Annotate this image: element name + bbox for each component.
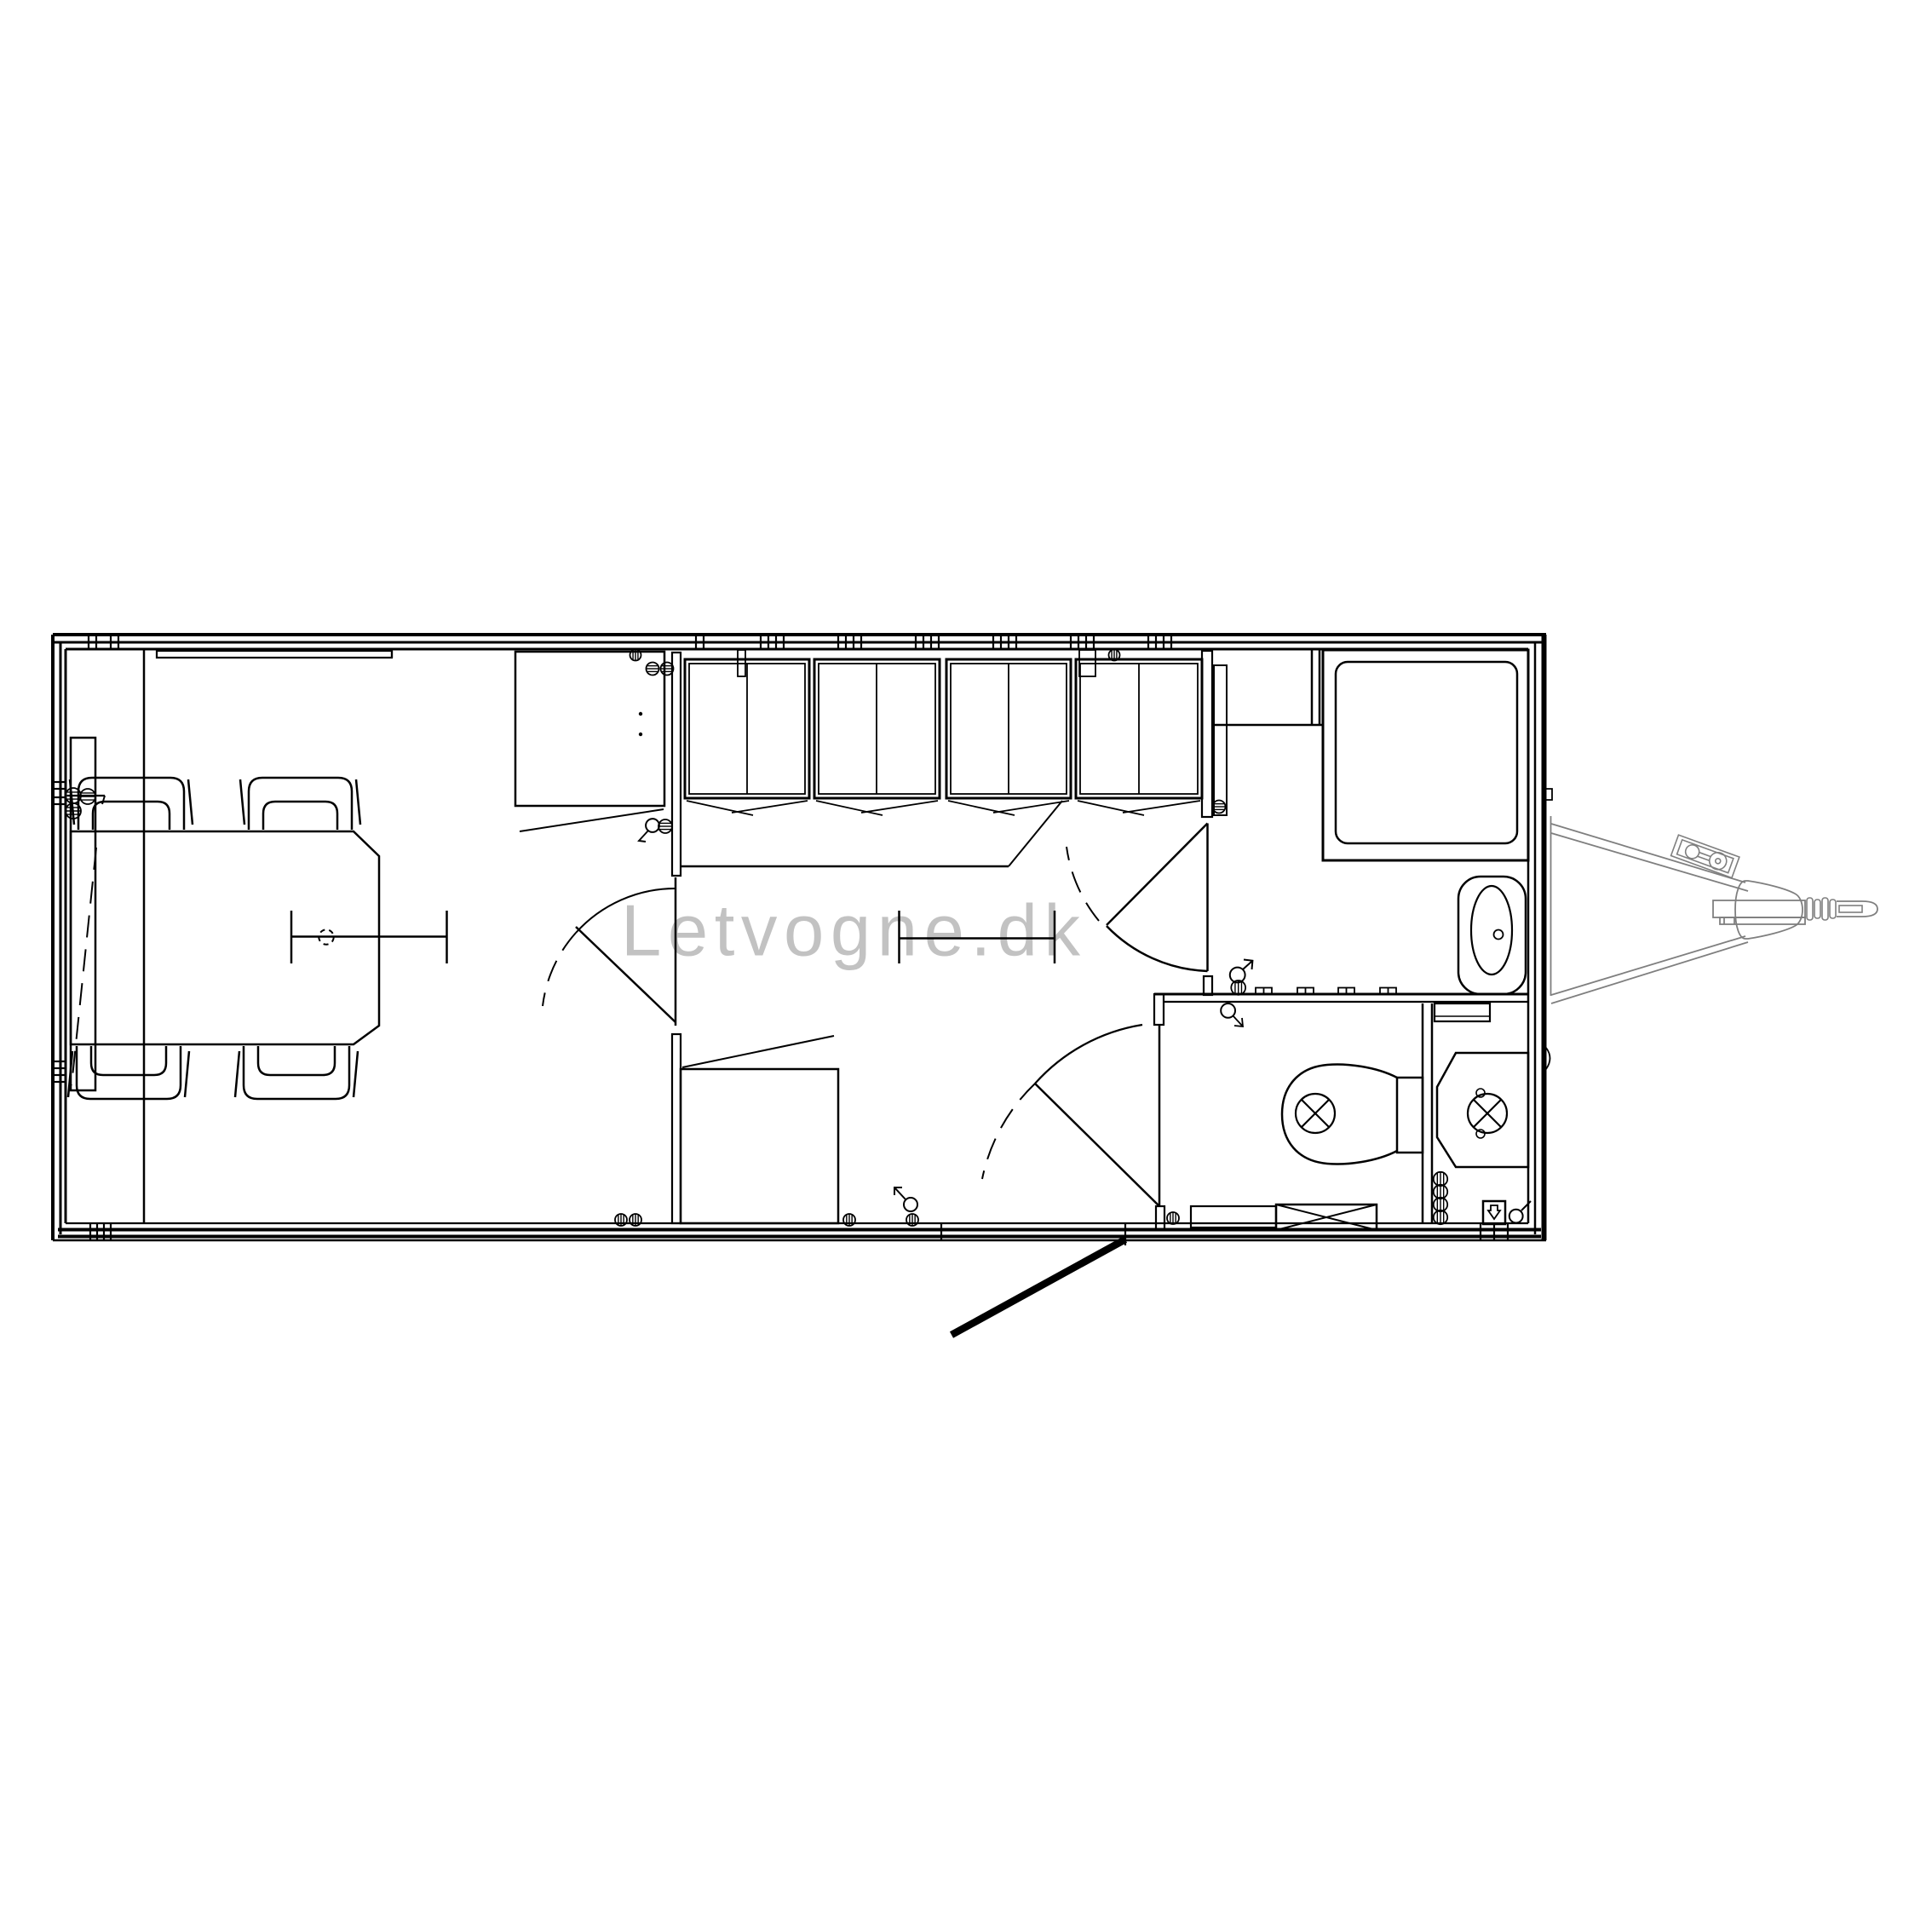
svg-text:Letvogne.dk: Letvogne.dk [621,891,1081,972]
